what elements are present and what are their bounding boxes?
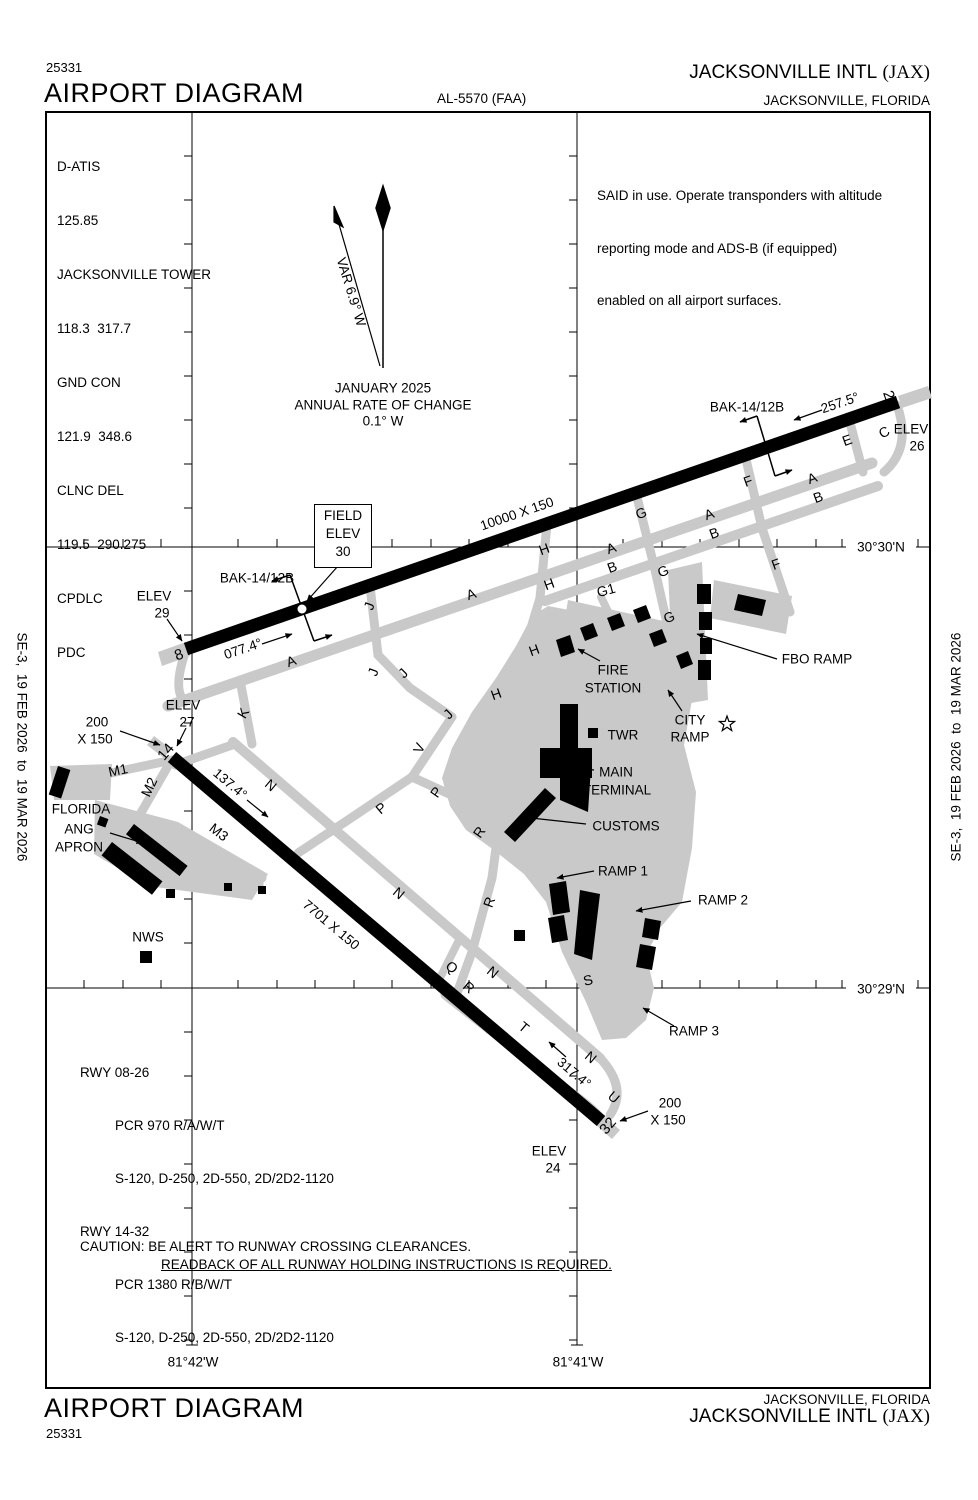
airport-name: JACKSONVILLE INTL [689, 1406, 877, 1427]
north-arrow [376, 186, 390, 368]
note-line: enabled on all airport surfaces. [597, 293, 882, 310]
page-title-bottom: AIRPORT DIAGRAM [44, 1393, 304, 1424]
comm-line: 119.5 290.275 [57, 536, 211, 554]
map-label-x-150: X 150 [650, 1113, 685, 1127]
transponder-note: SAID in use. Operate transponders with a… [597, 152, 882, 346]
map-label-bak-14-12b: BAK-14/12B [220, 571, 294, 585]
comm-line: 118.3 317.7 [57, 320, 211, 338]
heading-077-arrow [262, 634, 292, 644]
comm-frequencies-block: D-ATIS 125.85 JACKSONVILLE TOWER 118.3 3… [57, 122, 211, 698]
map-label-m1: M1 [107, 761, 129, 779]
note-line: reporting mode and ADS-B (if equipped) [597, 241, 882, 258]
heading-257-arrow [794, 410, 822, 420]
airport-title-bottom: JACKSONVILLE INTL (JAX) [689, 1406, 930, 1428]
map-label-nws: NWS [132, 930, 164, 944]
map-label-florida: FLORIDA [52, 802, 111, 816]
note-line: SAID in use. Operate transponders with a… [597, 188, 882, 205]
field-elev-point [298, 605, 307, 614]
airport-diagram-page: 25331 AIRPORT DIAGRAM AL-5570 (FAA) JACK… [0, 0, 978, 1500]
map-label-customs: CUSTOMS [592, 819, 659, 833]
comm-line: PDC [57, 644, 211, 662]
elev27-leader [177, 728, 186, 746]
map-label-fire: FIRE [598, 663, 629, 677]
caution-line-2: READBACK OF ALL RUNWAY HOLDING INSTRUCTI… [161, 1256, 612, 1274]
comm-line: JACKSONVILLE TOWER [57, 266, 211, 284]
runway-data-line: PCR 970 R/A/W/T [80, 1117, 334, 1134]
map-label-elev: ELEV [166, 698, 201, 712]
map-label-terminal: TERMINAL [583, 783, 651, 797]
map-label-annual-rate-of-change: ANNUAL RATE OF CHANGE [294, 398, 471, 412]
map-label-ramp-1: RAMP 1 [598, 864, 648, 878]
airport-id: (JAX) [883, 1406, 931, 1427]
overrun32-leader [620, 1111, 648, 1121]
caution-line-1: CAUTION: BE ALERT TO RUNWAY CROSSING CLE… [80, 1238, 471, 1256]
map-label-200: 200 [86, 715, 109, 729]
map-label-ramp: RAMP [670, 730, 709, 744]
map-label-27: 27 [179, 715, 194, 729]
comm-line: CLNC DEL [57, 482, 211, 500]
map-label-elev: ELEV [137, 589, 172, 603]
nws-building [140, 951, 152, 963]
longitude-label-right: 81°41'W [553, 1355, 604, 1370]
map-label-x-150: X 150 [77, 732, 112, 746]
map-label-200: 200 [659, 1096, 682, 1110]
effective-dates-left: SE-3, 19 FEB 2026 to 19 MAR 2026 [15, 633, 30, 862]
comm-line: 121.9 348.6 [57, 428, 211, 446]
map-label-29: 29 [154, 606, 169, 620]
map-label-elev: ELEV [894, 422, 929, 436]
airport-city-top: JACKSONVILLE, FLORIDA [763, 92, 930, 110]
field-elev-value: 30 [315, 543, 371, 561]
map-label-24: 24 [545, 1161, 560, 1175]
page-title-top: AIRPORT DIAGRAM [44, 78, 304, 109]
heading-137-arrow [247, 800, 268, 817]
al-number: AL-5570 (FAA) [437, 90, 526, 108]
map-label-bak-14-12b: BAK-14/12B [710, 400, 784, 414]
field-elev-line: FIELD [315, 507, 371, 525]
map-label-station: STATION [585, 681, 642, 695]
runway-data-block: RWY 08-26 PCR 970 R/A/W/T S-120, D-250, … [80, 1028, 334, 1382]
map-label-0-1-w: 0.1° W [363, 414, 404, 428]
runway-data-line: S-120, D-250, 2D-550, 2D/2D2-1120 [80, 1170, 334, 1187]
map-label-ang: ANG [64, 822, 93, 836]
map-label-ramp-2: RAMP 2 [698, 893, 748, 907]
overrun-26 [898, 386, 932, 408]
latitude-label-top: 30°30'N [853, 540, 909, 555]
airport-name: JACKSONVILLE INTL [689, 62, 877, 83]
map-label-26: 26 [909, 439, 924, 453]
runway-data-line: S-120, D-250, 2D-550, 2D/2D2-1120 [80, 1329, 334, 1346]
airport-title-top: JACKSONVILLE INTL (JAX) [689, 62, 930, 84]
ramp2-building-b [642, 918, 661, 940]
runway-data-line: RWY 08-26 [80, 1064, 334, 1081]
beacon-star-icon [719, 716, 734, 731]
airport-id: (JAX) [883, 62, 931, 83]
comm-line: CPDLC [57, 590, 211, 608]
runway-data-line: PCR 1380 R/B/W/T [80, 1276, 334, 1293]
map-label-twr: TWR [608, 728, 639, 742]
field-elev-box: FIELD ELEV 30 [314, 504, 372, 568]
map-label-january-2025: JANUARY 2025 [335, 381, 431, 395]
map-label-ramp-3: RAMP 3 [669, 1024, 719, 1038]
map-label-apron: APRON [55, 840, 103, 854]
tower-building [588, 728, 598, 738]
field-elev-line: ELEV [315, 525, 371, 543]
effective-dates-right: SE-3, 19 FEB 2026 to 19 MAR 2026 [949, 633, 964, 862]
map-label-fbo-ramp: FBO RAMP [782, 652, 853, 666]
chart-number-bottom: 25331 [46, 1426, 82, 1441]
chart-number-top: 25331 [46, 60, 82, 75]
map-label-city: CITY [675, 713, 706, 727]
map-label-main: MAIN [599, 765, 633, 779]
comm-line: 125.85 [57, 212, 211, 230]
latitude-label-bottom: 30°29'N [853, 982, 909, 997]
comm-line: D-ATIS [57, 158, 211, 176]
map-label-elev: ELEV [532, 1144, 567, 1158]
comm-line: GND CON [57, 374, 211, 392]
